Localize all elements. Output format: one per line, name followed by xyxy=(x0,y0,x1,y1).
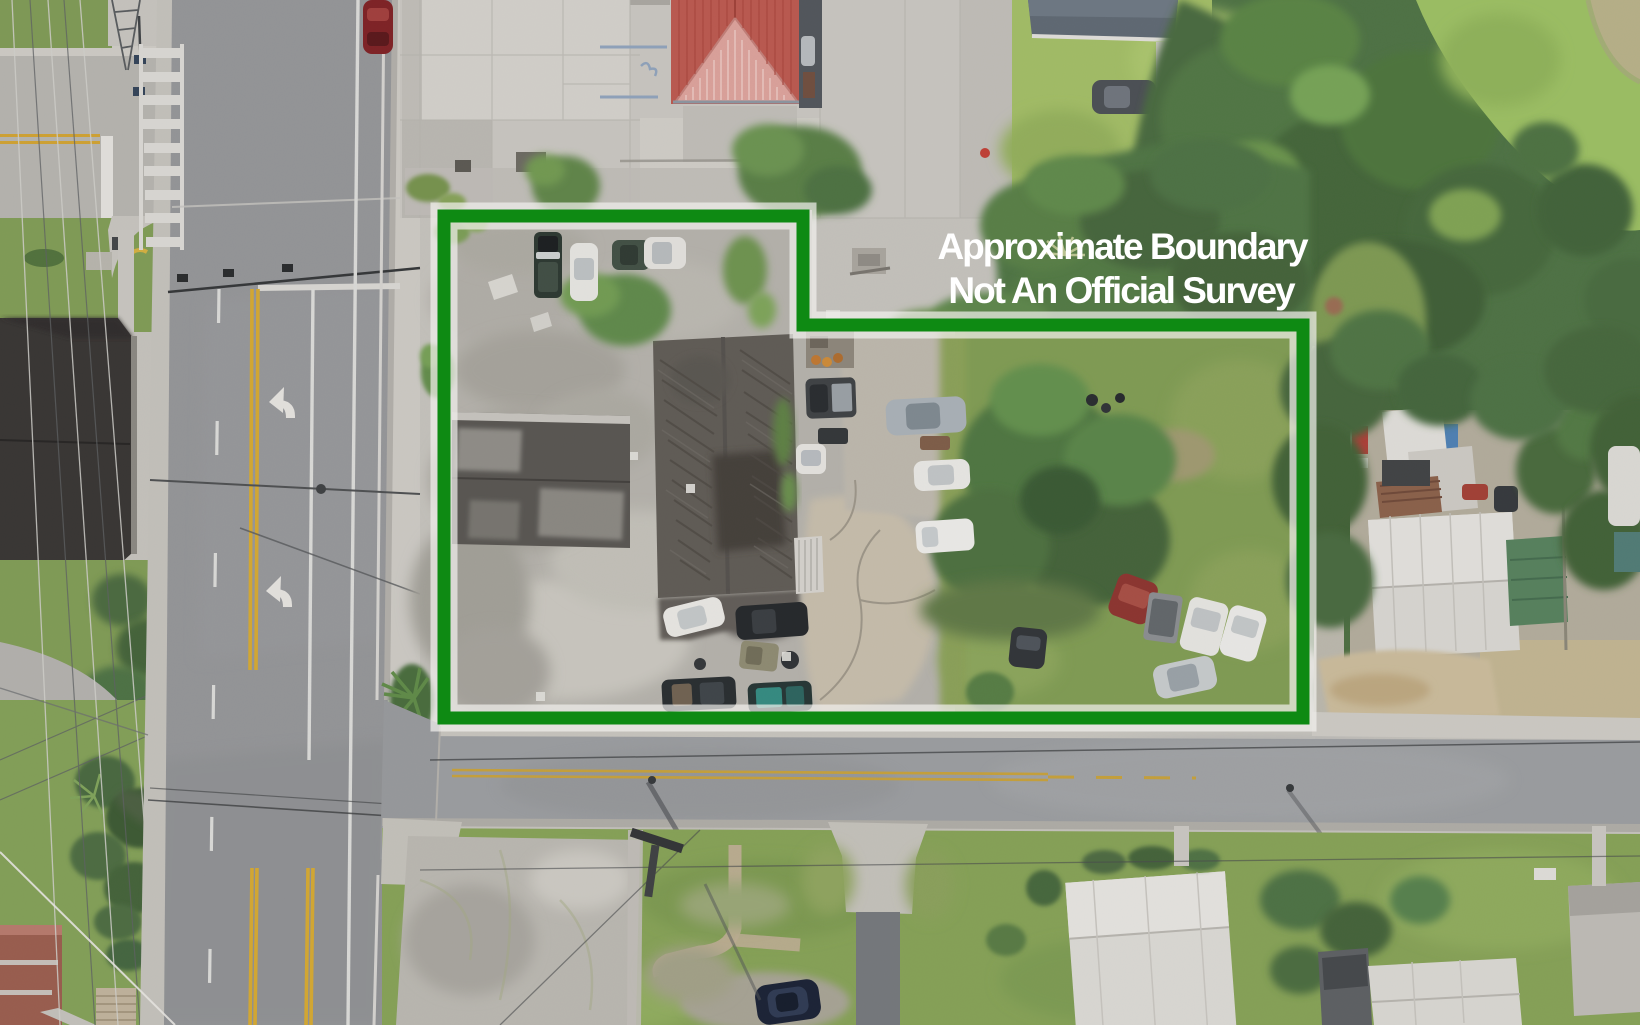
svg-text:Not An Official Survey: Not An Official Survey xyxy=(948,270,1296,311)
svg-text:Approximate Boundary: Approximate Boundary xyxy=(937,226,1309,267)
